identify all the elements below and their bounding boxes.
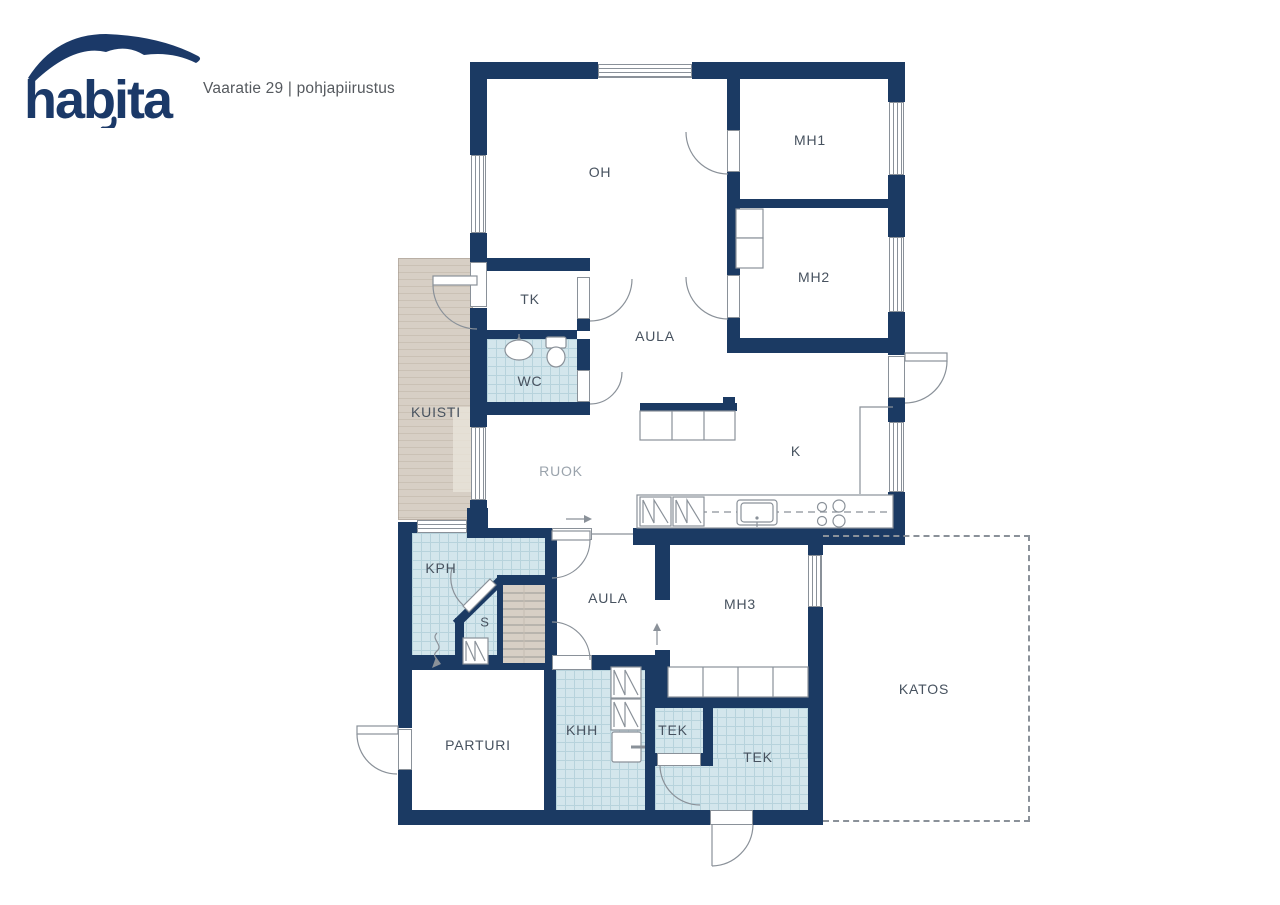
room-label-aula-lower: AULA [588, 590, 628, 606]
door-arc [552, 540, 590, 578]
wc-floor [487, 339, 577, 402]
sink-unit-icon [737, 500, 777, 527]
room-label-khh: KHH [566, 722, 598, 738]
room-label-mh1: MH1 [794, 132, 826, 148]
room-label-kph: KPH [425, 560, 456, 576]
room-label-aula-upper: AULA [635, 328, 675, 344]
window [598, 64, 692, 78]
door-arc [686, 132, 728, 174]
hall-cabinet [640, 411, 735, 440]
room-label-ruok: RUOK [539, 463, 583, 479]
door-arc [590, 279, 632, 321]
passage-arrow-right [566, 515, 592, 523]
door [710, 810, 753, 825]
door [552, 528, 592, 540]
door-arc [357, 734, 397, 774]
dishwasher-icon [640, 497, 671, 526]
door-arc [905, 361, 947, 403]
door-arc [590, 372, 622, 404]
room-label-mh2: MH2 [798, 269, 830, 285]
room-label-tek-big: TEK [743, 749, 773, 765]
kitchen-counter [637, 407, 893, 528]
room-label-oh: OH [589, 164, 612, 180]
window [471, 427, 486, 500]
wall-opening [655, 600, 670, 650]
mh2-wardrobe [736, 209, 763, 268]
room-label-s: S [480, 615, 489, 630]
door [398, 729, 412, 770]
khh-floor [556, 670, 645, 810]
window [889, 237, 904, 312]
room-label-kuisti: KUISTI [411, 404, 461, 420]
window [889, 102, 904, 175]
door [727, 275, 740, 318]
door [577, 277, 590, 319]
stove-icon [818, 500, 846, 527]
kph-floor [412, 533, 545, 655]
room-label-mh3: MH3 [724, 596, 756, 612]
brand-wordmark: habita [24, 70, 174, 128]
window [471, 155, 486, 233]
window [889, 422, 904, 492]
room-label-wc: WC [518, 373, 543, 389]
habita-logo: habita [22, 18, 202, 128]
room-label-k: K [791, 443, 801, 459]
window [808, 555, 822, 607]
floor-plan-page: habita Vaaratie 29 | pohjapiirustus [0, 0, 1280, 905]
plan-subtitle: Vaaratie 29 | pohjapiirustus [203, 80, 395, 98]
door-leaf [357, 726, 398, 734]
door [470, 262, 487, 307]
room-label-tek-small: TEK [658, 722, 688, 738]
room-label-katos: KATOS [899, 681, 949, 697]
room-label-tk: TK [520, 291, 540, 307]
door-leaf [905, 353, 947, 361]
door [552, 655, 592, 670]
door [727, 130, 740, 172]
door [657, 753, 701, 766]
room-label-parturi: PARTURI [445, 737, 511, 753]
door-arc [686, 277, 728, 319]
katos-canopy-outline [823, 535, 1030, 822]
entry-door [888, 356, 905, 398]
window [417, 520, 467, 533]
door [577, 370, 590, 402]
door-arc [712, 825, 753, 866]
fridge-icon [673, 497, 704, 526]
mh3-wardrobe [668, 667, 808, 697]
